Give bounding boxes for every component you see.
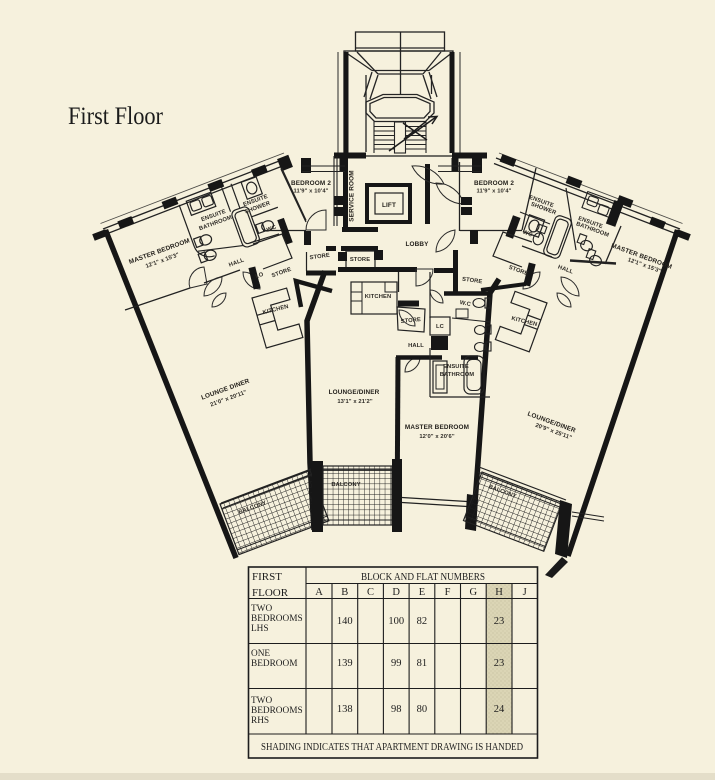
svg-text:24: 24 <box>494 704 505 715</box>
svg-text:SHADING INDICATES THAT APARTME: SHADING INDICATES THAT APARTMENT DRAWING… <box>261 742 523 753</box>
svg-text:First Floor: First Floor <box>68 101 163 130</box>
svg-text:FLOOR: FLOOR <box>252 587 289 599</box>
svg-text:RHS: RHS <box>251 716 269 726</box>
svg-text:99: 99 <box>391 658 402 669</box>
svg-text:FIRST: FIRST <box>252 571 282 583</box>
svg-text:E: E <box>419 587 425 598</box>
svg-text:BLOCK AND FLAT NUMBERS: BLOCK AND FLAT NUMBERS <box>361 572 485 583</box>
svg-text:LOBBY: LOBBY <box>405 241 429 248</box>
svg-text:138: 138 <box>337 704 353 715</box>
svg-text:G: G <box>470 587 478 598</box>
svg-text:B: B <box>341 587 348 598</box>
svg-text:11'9" x 10'4": 11'9" x 10'4" <box>476 189 511 195</box>
svg-text:C: C <box>367 587 374 598</box>
svg-text:81: 81 <box>417 658 428 669</box>
svg-text:23: 23 <box>494 658 505 669</box>
svg-text:BATHROOM: BATHROOM <box>440 372 475 378</box>
svg-text:SERVICE ROOM: SERVICE ROOM <box>349 170 356 221</box>
svg-text:ONE: ONE <box>251 649 270 659</box>
svg-text:H: H <box>495 587 503 598</box>
svg-text:BEDROOM 2: BEDROOM 2 <box>474 180 514 187</box>
svg-text:BEDROOM: BEDROOM <box>251 659 298 669</box>
svg-text:LC: LC <box>436 324 445 330</box>
svg-text:KITCHEN: KITCHEN <box>365 294 391 300</box>
svg-text:D: D <box>392 587 400 598</box>
svg-text:MASTER BEDROOM: MASTER BEDROOM <box>405 424 469 431</box>
svg-text:J: J <box>523 587 527 598</box>
svg-text:82: 82 <box>417 616 428 627</box>
svg-text:13'1" x 21'2": 13'1" x 21'2" <box>337 399 372 405</box>
svg-text:LOUNGE/DINER: LOUNGE/DINER <box>329 389 380 396</box>
svg-text:A: A <box>315 587 323 598</box>
svg-text:STORE: STORE <box>350 257 370 263</box>
svg-text:BEDROOMS: BEDROOMS <box>251 706 303 716</box>
svg-text:ENSUITE: ENSUITE <box>443 364 469 370</box>
svg-text:TWO: TWO <box>251 696 272 706</box>
svg-text:23: 23 <box>494 616 505 627</box>
svg-text:11'9" x 10'4": 11'9" x 10'4" <box>293 189 328 195</box>
svg-text:HALL: HALL <box>408 343 424 349</box>
svg-text:12'0" x 20'6": 12'0" x 20'6" <box>419 434 454 440</box>
svg-text:100: 100 <box>388 616 404 627</box>
svg-text:BEDROOMS: BEDROOMS <box>251 614 303 624</box>
svg-text:140: 140 <box>337 616 353 627</box>
svg-text:BEDROOM 2: BEDROOM 2 <box>291 180 331 187</box>
svg-text:139: 139 <box>337 658 353 669</box>
svg-text:F: F <box>445 587 451 598</box>
svg-text:LHS: LHS <box>251 624 269 634</box>
svg-text:LIFT: LIFT <box>382 202 396 209</box>
svg-text:98: 98 <box>391 704 402 715</box>
svg-text:80: 80 <box>417 704 428 715</box>
svg-text:TWO: TWO <box>251 604 272 614</box>
